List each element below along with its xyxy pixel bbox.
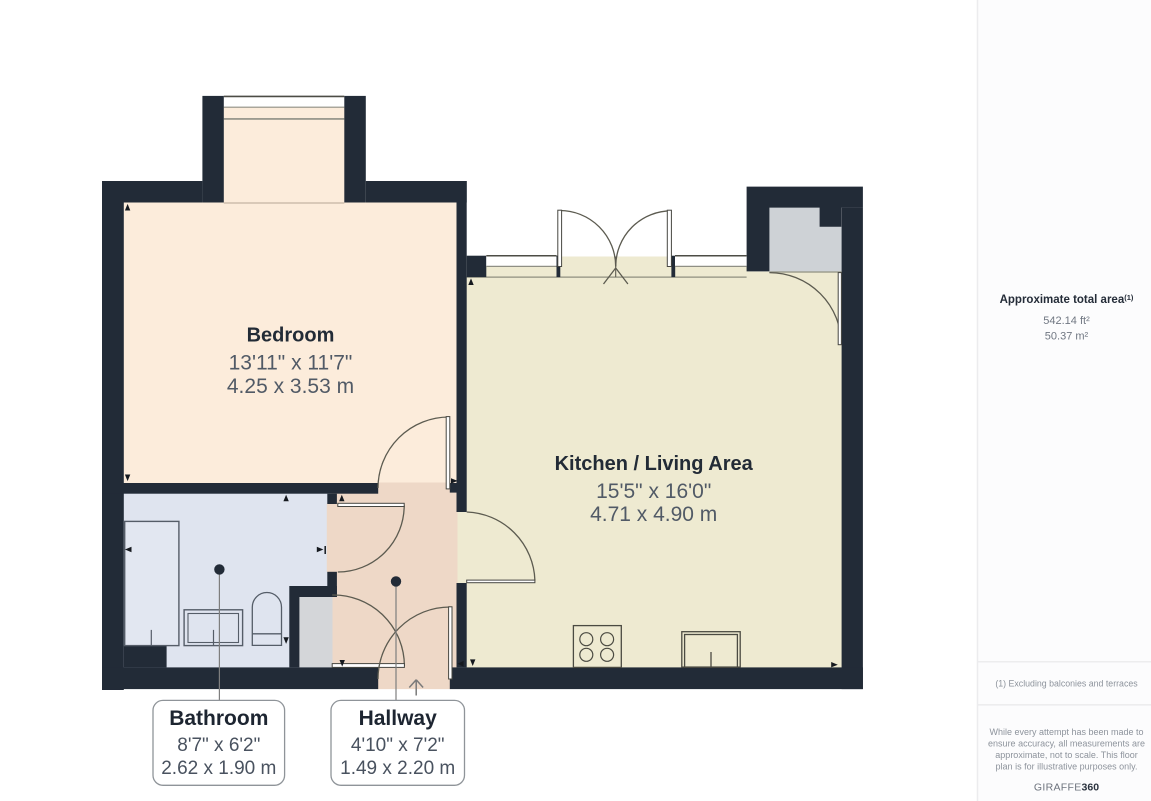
svg-text:542.14 ft²: 542.14 ft² [1043, 315, 1090, 327]
svg-text:4.71 x 4.90 m: 4.71 x 4.90 m [590, 503, 717, 526]
svg-text:Bedroom: Bedroom [247, 325, 335, 347]
svg-text:ensure accuracy, all measureme: ensure accuracy, all measurements are [988, 739, 1145, 749]
svg-text:approximate, not to scale. Thi: approximate, not to scale. This floor [995, 750, 1137, 760]
svg-text:(1) Excluding balconies and te: (1) Excluding balconies and terraces [995, 679, 1138, 689]
svg-text:4.25 x 3.53 m: 4.25 x 3.53 m [227, 375, 354, 398]
svg-text:13'11" x 11'7": 13'11" x 11'7" [229, 352, 353, 375]
svg-text:plan is for illustrative purpo: plan is for illustrative purposes only. [996, 762, 1138, 772]
svg-text:15'5" x 16'0": 15'5" x 16'0" [596, 480, 711, 503]
svg-text:GIRAFFE360: GIRAFFE360 [1034, 782, 1099, 794]
svg-text:While every attempt has been m: While every attempt has been made to [989, 727, 1143, 737]
svg-text:4'10" x 7'2": 4'10" x 7'2" [351, 735, 445, 756]
svg-text:Approximate total area(1): Approximate total area(1) [1000, 293, 1134, 306]
svg-text:2.62 x 1.90 m: 2.62 x 1.90 m [161, 758, 276, 779]
svg-text:50.37 m²: 50.37 m² [1045, 331, 1089, 343]
svg-text:1.49 x 2.20 m: 1.49 x 2.20 m [340, 758, 455, 779]
svg-text:Kitchen / Living Area: Kitchen / Living Area [555, 453, 754, 475]
svg-text:Bathroom: Bathroom [169, 707, 268, 730]
svg-text:Hallway: Hallway [359, 707, 438, 730]
svg-text:8'7" x 6'2": 8'7" x 6'2" [177, 735, 260, 756]
